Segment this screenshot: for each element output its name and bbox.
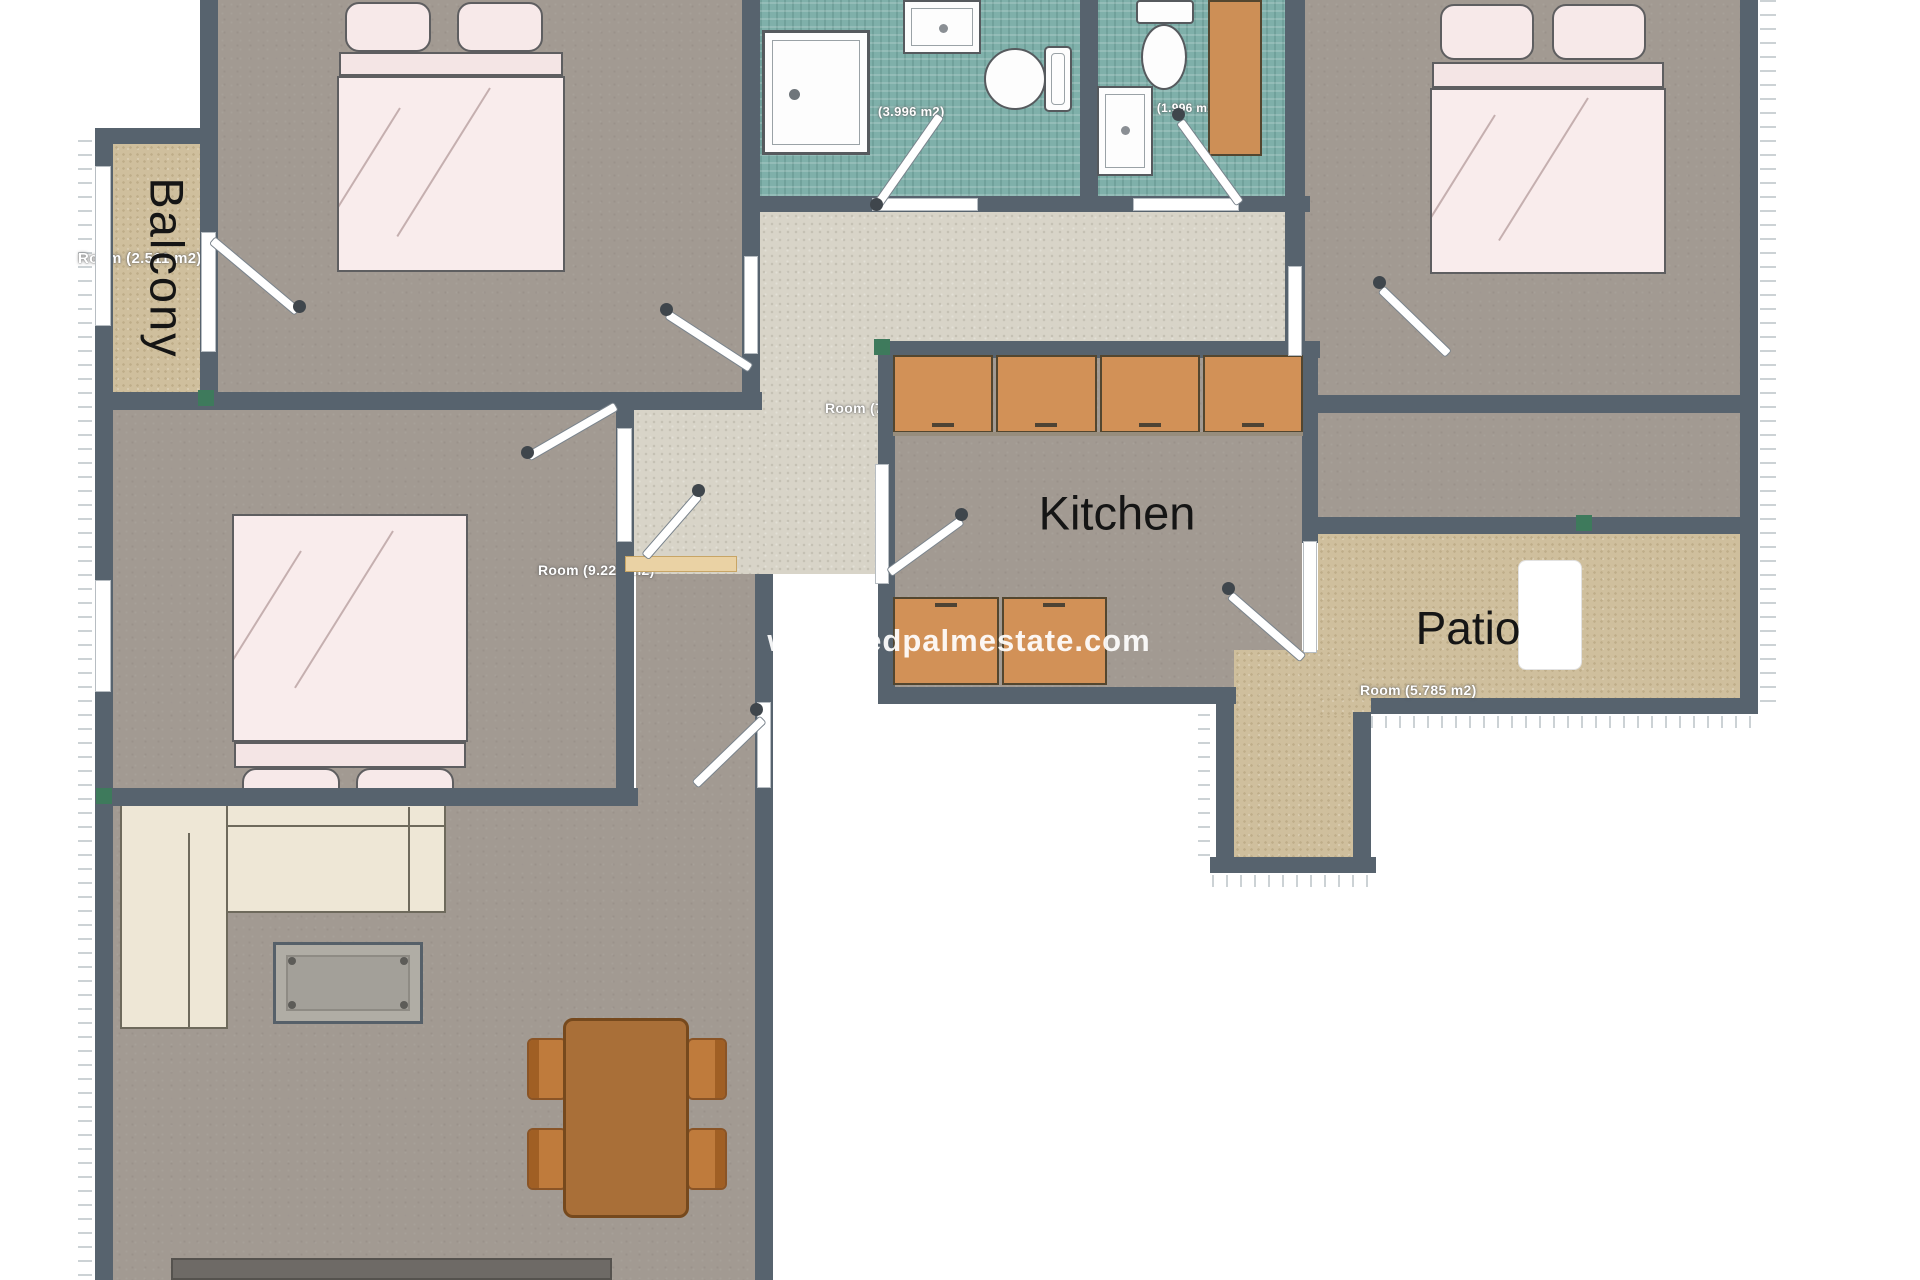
- cabinet-handle: [1035, 423, 1057, 427]
- dining-chair: [687, 1128, 727, 1190]
- patio-bottom-wall: [1371, 698, 1758, 714]
- wall-junction-accent: [1576, 515, 1592, 531]
- bed-double: [1430, 0, 1666, 274]
- ruler-left: [78, 140, 92, 1280]
- wall-junction-accent: [874, 339, 890, 355]
- chair-back: [715, 1130, 725, 1188]
- sink-drain: [939, 24, 948, 33]
- bedroom-top-right-door-hinge: [1373, 276, 1386, 289]
- table-corner-dot: [288, 1001, 296, 1009]
- kitchen-hall-door-jamb: [875, 464, 889, 584]
- bed-duvet: [337, 76, 565, 272]
- pillow: [345, 2, 431, 52]
- coffee-table-top: [286, 955, 410, 1011]
- ruler-below-patio: [1371, 716, 1758, 728]
- balcony-door-jamb: [201, 232, 216, 352]
- kitchen-hall-door-hinge: [955, 508, 968, 521]
- sofa-chaise-line: [188, 833, 190, 1027]
- shower: [762, 30, 870, 155]
- kitchen-upper-cabinets: [893, 355, 1303, 433]
- dressing-strip-floor: [1318, 413, 1740, 517]
- cabinet-unit: [893, 355, 993, 433]
- duvet-fold-line: [337, 107, 401, 244]
- cabinet-handle: [932, 423, 954, 427]
- pillow: [1552, 4, 1646, 60]
- chair-back: [715, 1040, 725, 1098]
- bathroom-1-door-hinge: [870, 198, 883, 211]
- dining-chair: [527, 1038, 567, 1100]
- bathroom-1-door-sill: [872, 198, 978, 211]
- bedroom-mid-left-door-hinge: [521, 446, 534, 459]
- bathroom-sink: [1097, 86, 1153, 176]
- table-corner-dot: [400, 957, 408, 965]
- duvet-fold-line: [1498, 97, 1589, 241]
- patio-column-bottom-wall: [1210, 857, 1376, 873]
- patio-column-left-wall: [1216, 687, 1234, 873]
- duvet-fold-line: [232, 550, 302, 695]
- pillow: [1440, 4, 1534, 60]
- cabinet-handle: [1242, 423, 1264, 427]
- tv-stand: [171, 1258, 612, 1280]
- bedroom-mid-left-door-jamb: [617, 428, 632, 542]
- dining-table: [563, 1018, 689, 1218]
- bedroom-top-right-bottom-wall: [1285, 395, 1758, 413]
- coffee-table: [273, 942, 423, 1024]
- bathroom-sink: [903, 0, 981, 54]
- balcony-door-hinge: [293, 300, 306, 313]
- bathroom-2-door-hinge: [1172, 108, 1185, 121]
- kitchen-patio-door-hinge: [1222, 582, 1235, 595]
- ruler-left-of-patio-column: [1198, 700, 1210, 860]
- shower-drain: [789, 89, 800, 100]
- wall-junction-accent: [198, 390, 214, 406]
- area-label-patio: Room (5.785 m2): [1360, 682, 1477, 698]
- living-room-door-hinge: [750, 703, 763, 716]
- bed-sheet-fold: [234, 742, 466, 768]
- bed-double: [232, 514, 468, 806]
- ruler-below-patio-column: [1212, 875, 1376, 887]
- bed-duvet: [1430, 88, 1666, 274]
- dining-chair: [527, 1128, 567, 1190]
- bed-double: [337, 0, 565, 272]
- kitchen-bottom-wall: [878, 687, 1236, 704]
- cabinet-handle: [1043, 603, 1065, 607]
- patio-top-wall: [1302, 517, 1758, 534]
- patio-label: Patio: [1416, 601, 1521, 655]
- cabinet-handle: [1139, 423, 1161, 427]
- hallway-top-floor: [760, 212, 1285, 341]
- bedroom-top-left-door-jamb: [744, 256, 758, 354]
- bedroom-top-left-door-hinge: [660, 303, 673, 316]
- balcony-label: Balcony: [140, 177, 195, 358]
- bed-duvet: [232, 514, 468, 742]
- entrance-door-sill: [625, 556, 737, 572]
- bathroom-2-door-sill: [1133, 198, 1239, 211]
- living-entry-floor: [636, 574, 755, 806]
- bedroom-top-right-door-jamb: [1288, 266, 1302, 356]
- toilet-tank: [1136, 0, 1194, 24]
- exterior-right-wall: [1740, 0, 1758, 714]
- bedroom-mid-left-window: [95, 580, 111, 692]
- cabinet-unit: [1100, 355, 1200, 433]
- toilet-tank-lid: [1051, 53, 1065, 105]
- exterior-left-wall: [95, 394, 113, 1280]
- chair-back: [529, 1040, 539, 1098]
- kitchen-label: Kitchen: [1039, 486, 1196, 541]
- chair-back: [529, 1130, 539, 1188]
- patio-column-right-wall: [1353, 712, 1371, 857]
- sofa-section-chaise: [120, 803, 228, 1029]
- dining-chair: [687, 1038, 727, 1100]
- bed-sheet-fold: [1432, 62, 1664, 88]
- pillow: [457, 2, 543, 52]
- living-room-top-wall: [95, 788, 638, 806]
- cabinet-handle: [935, 603, 957, 607]
- patio-table: [1518, 560, 1582, 670]
- bathroom-divider-wall: [1080, 0, 1098, 198]
- toilet-bowl: [984, 48, 1046, 110]
- living-room-right-wall: [755, 574, 773, 1280]
- bathroom-cabinet: [1208, 0, 1262, 156]
- duvet-fold-line: [1430, 114, 1496, 247]
- kitchen-counter-edge: [893, 432, 1303, 436]
- toilet-bowl: [1141, 24, 1187, 90]
- table-corner-dot: [400, 1001, 408, 1009]
- kitchen-right-wall: [1302, 341, 1318, 543]
- entrance-door-hinge: [692, 484, 705, 497]
- duvet-fold-line: [396, 87, 490, 236]
- wall-junction-accent: [96, 788, 112, 804]
- sofa-armrest-line: [408, 807, 410, 911]
- bed-sheet-fold: [339, 52, 563, 76]
- cabinet-unit: [996, 355, 1096, 433]
- table-corner-dot: [288, 957, 296, 965]
- watermark: www.redpalmestate.com: [767, 623, 1150, 659]
- toilet-tank: [1044, 46, 1072, 112]
- cabinet-unit: [1203, 355, 1303, 433]
- floor-plan-canvas: Room (2.511 m2) (3.996 m2) Room (1.996 m…: [0, 0, 1920, 1280]
- bedroom-top-left-bottom-wall: [95, 392, 762, 410]
- patio-floor-column: [1234, 650, 1358, 857]
- ruler-right: [1760, 0, 1776, 714]
- duvet-fold-line: [294, 530, 394, 688]
- balcony-window: [95, 166, 111, 326]
- shower-tray: [772, 40, 860, 145]
- kitchen-patio-door-jamb: [1303, 541, 1317, 653]
- hallway-mid-floor: [760, 341, 878, 574]
- sink-drain: [1121, 126, 1130, 135]
